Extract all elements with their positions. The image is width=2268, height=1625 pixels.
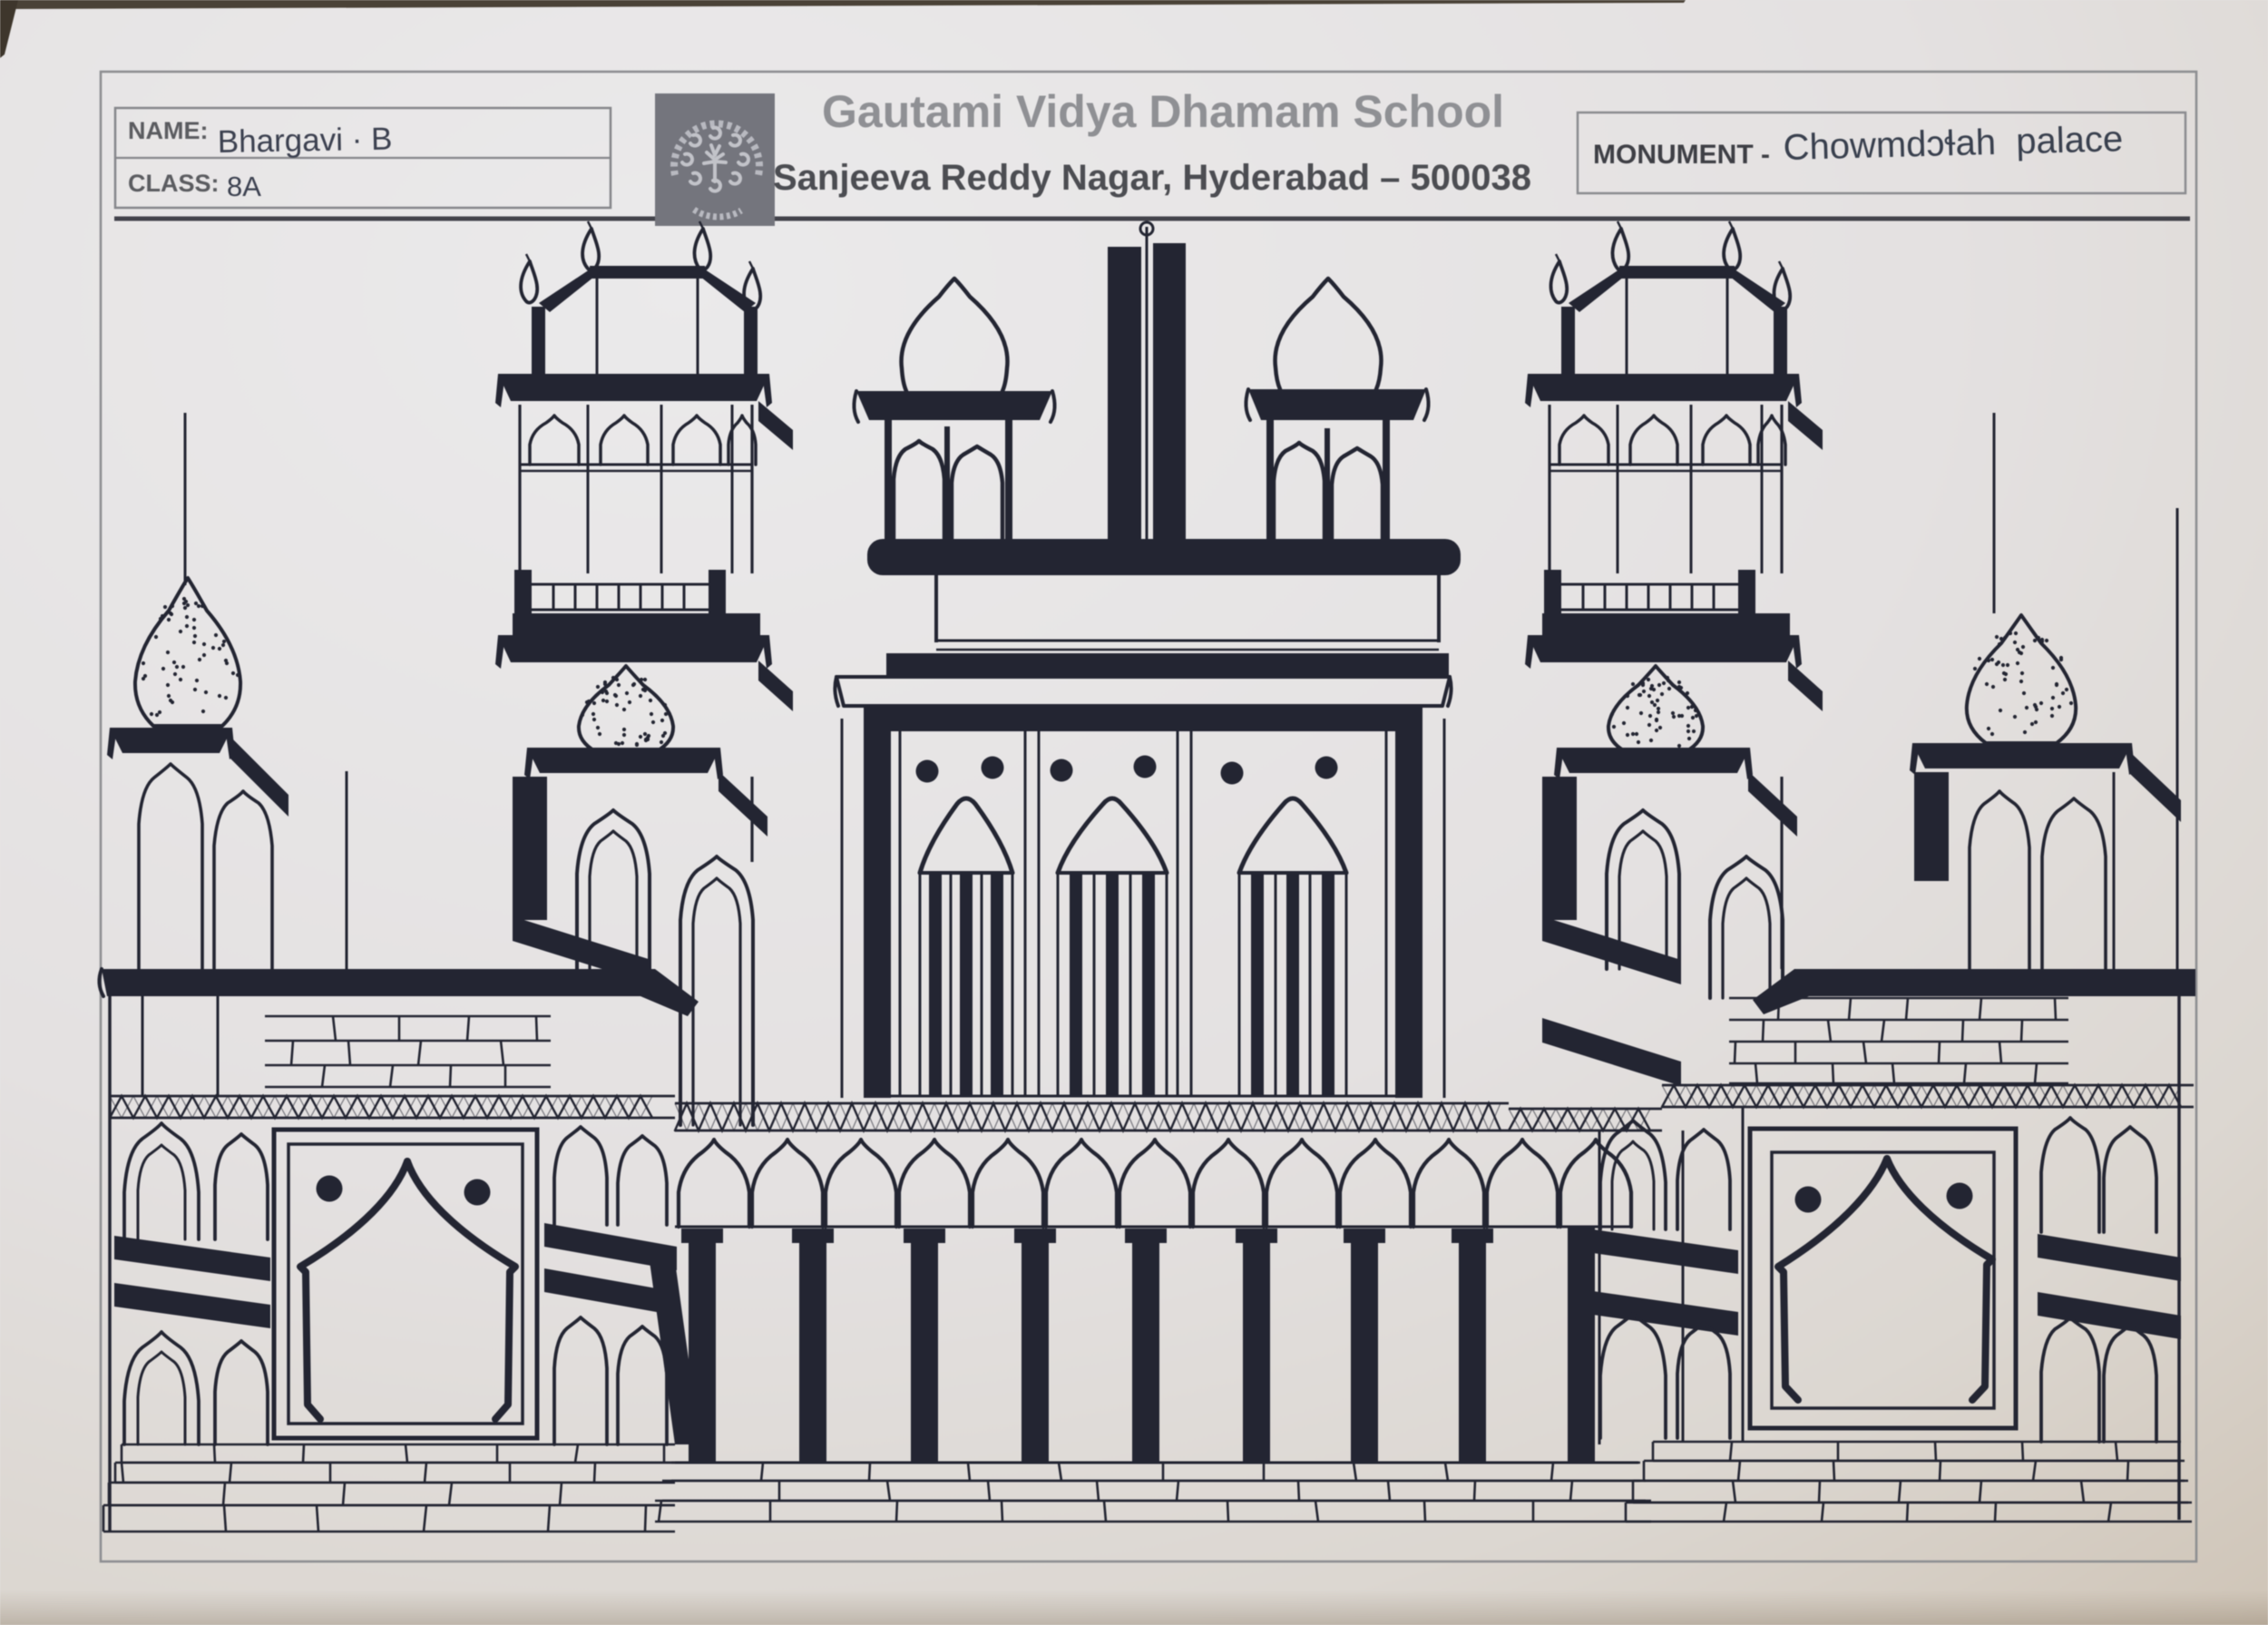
svg-text:MONUMENT -: MONUMENT - (1593, 140, 1770, 170)
svg-text:Bhargavi · B: Bhargavi · B (217, 122, 392, 160)
svg-text:8A: 8A (227, 171, 261, 202)
svg-text:Sanjeeva Reddy Nagar, Hyderaba: Sanjeeva Reddy Nagar, Hyderabad – 500038 (773, 158, 1531, 198)
svg-text:Gautami Vidya Dhamam School: Gautami Vidya Dhamam School (822, 86, 1504, 137)
svg-text:NAME:: NAME: (128, 117, 209, 144)
svg-text:CLASS:: CLASS: (128, 170, 220, 197)
